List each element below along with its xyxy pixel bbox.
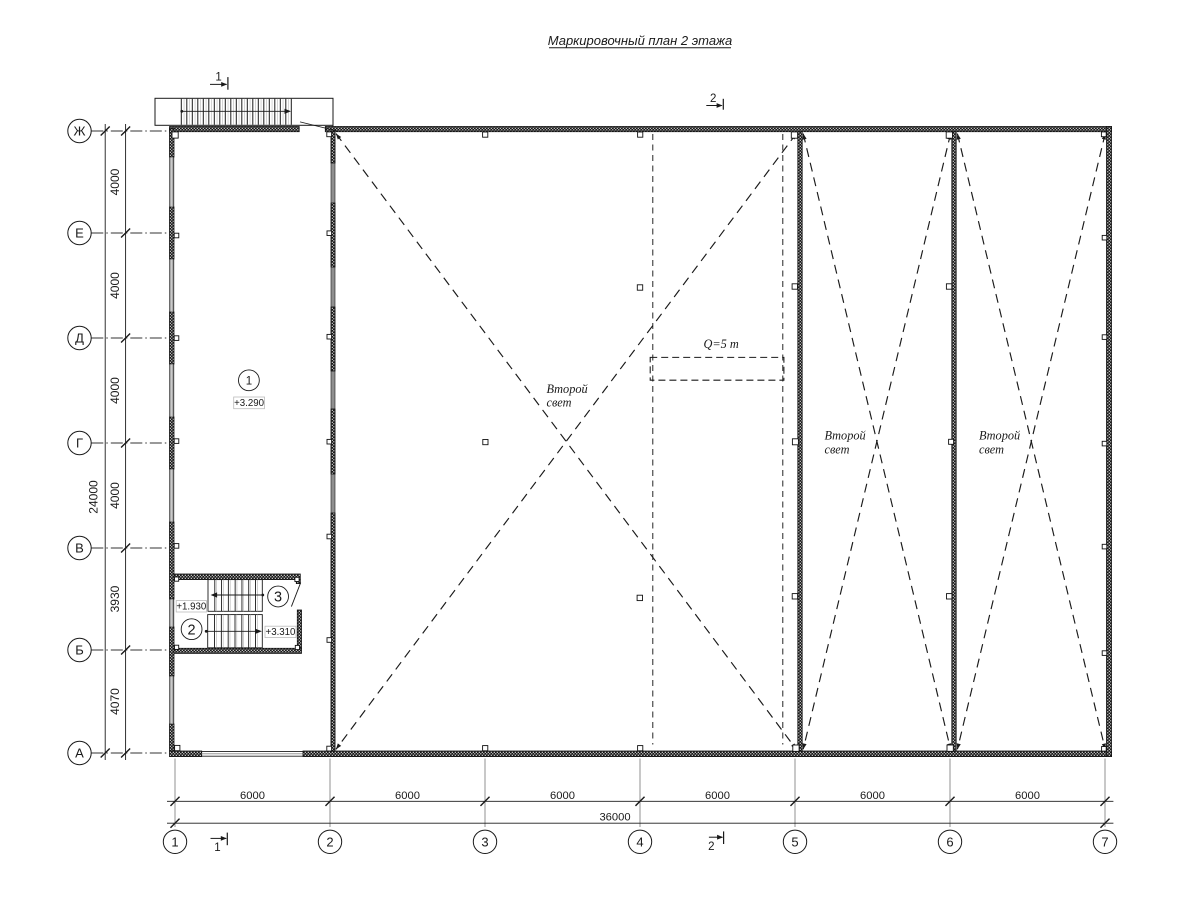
svg-text:Ж: Ж	[73, 124, 85, 139]
svg-text:1: 1	[246, 375, 252, 387]
svg-text:7: 7	[1101, 835, 1108, 850]
svg-text:1: 1	[214, 842, 220, 854]
svg-text:6000: 6000	[705, 790, 730, 802]
svg-text:4000: 4000	[108, 482, 122, 509]
svg-text:4070: 4070	[108, 688, 122, 715]
svg-text:Б: Б	[75, 643, 84, 658]
svg-text:2: 2	[188, 622, 196, 638]
svg-text:3: 3	[274, 590, 282, 606]
svg-text:Второй: Второй	[979, 429, 1021, 443]
svg-text:4000: 4000	[108, 272, 122, 299]
svg-text:Г: Г	[76, 436, 83, 451]
svg-text:+1.930: +1.930	[176, 602, 207, 613]
svg-text:36000: 36000	[599, 812, 630, 824]
svg-text:Второй: Второй	[547, 382, 589, 396]
svg-text:2: 2	[710, 93, 716, 105]
svg-text:Д: Д	[75, 331, 84, 346]
svg-text:4: 4	[636, 835, 643, 850]
svg-text:свет: свет	[547, 396, 572, 410]
svg-text:Е: Е	[75, 226, 84, 241]
svg-text:Маркировочный план 2 этажа: Маркировочный план 2 этажа	[548, 33, 733, 48]
svg-text:+3.290: +3.290	[234, 398, 265, 409]
svg-text:5: 5	[791, 835, 798, 850]
svg-text:4000: 4000	[108, 377, 122, 404]
svg-text:+3.310: +3.310	[266, 627, 297, 638]
svg-text:А: А	[75, 746, 84, 761]
svg-text:6000: 6000	[1015, 790, 1040, 802]
svg-text:6000: 6000	[550, 790, 575, 802]
svg-text:Q=5 т: Q=5 т	[704, 337, 739, 351]
svg-text:Второй: Второй	[825, 429, 867, 443]
svg-text:3: 3	[481, 835, 488, 850]
svg-text:6: 6	[946, 835, 953, 850]
svg-text:6000: 6000	[240, 790, 265, 802]
svg-text:свет: свет	[825, 443, 850, 457]
svg-text:1: 1	[215, 71, 221, 83]
svg-text:24000: 24000	[87, 480, 101, 514]
svg-text:свет: свет	[979, 443, 1004, 457]
svg-text:6000: 6000	[395, 790, 420, 802]
svg-text:3930: 3930	[108, 585, 122, 612]
svg-text:6000: 6000	[860, 790, 885, 802]
svg-text:1: 1	[171, 835, 178, 850]
svg-text:2: 2	[326, 835, 333, 850]
svg-text:2: 2	[708, 841, 714, 853]
svg-text:В: В	[75, 541, 84, 556]
svg-text:4000: 4000	[108, 168, 122, 195]
